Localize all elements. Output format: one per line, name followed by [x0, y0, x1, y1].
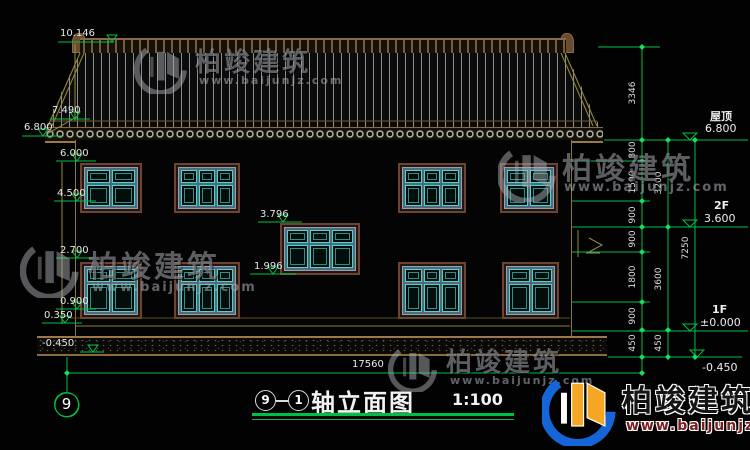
level-plinth: 0.350 — [44, 310, 73, 321]
dim-a5: 1800 — [628, 259, 638, 295]
dim-total-height: 7250 — [681, 230, 691, 266]
title-underline-thin — [252, 419, 514, 420]
level-eave: 7.490 — [52, 105, 81, 116]
level-w2-head: 6.000 — [60, 148, 89, 159]
dim-a7: 450 — [628, 325, 638, 361]
level-eave-tip: 6.800 — [24, 122, 53, 133]
dim-a4: 900 — [628, 221, 638, 257]
dim-b3: 450 — [654, 325, 664, 361]
title-axis-end: 1 — [288, 390, 309, 411]
dim-b2: 3600 — [654, 261, 664, 297]
flag-roof-level: 6.800 — [705, 122, 737, 135]
flag-1f-label: 1F — [712, 303, 727, 316]
dim-total-width: 17560 — [352, 359, 384, 370]
axis-bubble-9: 9 — [54, 392, 79, 417]
flag-1f-level: ±0.000 — [700, 316, 741, 329]
level-w2-sill: 4.500 — [57, 188, 86, 199]
level-ridge: 10.146 — [60, 28, 95, 39]
drawing-scale: 1:100 — [452, 390, 503, 409]
flag-ground-level: -0.450 — [702, 361, 737, 374]
dim-roof-rise: 3346 — [628, 75, 638, 111]
elevation-drawing: 10.146 7.490 6.800 6.000 4.500 2.700 0.9… — [0, 0, 750, 450]
title-axis-start: 9 — [255, 390, 276, 411]
level-w1-sill: 0.900 — [60, 296, 89, 307]
dim-a2: 1500 — [628, 164, 638, 200]
title-underline-thick — [252, 413, 514, 416]
flag-2f-level: 3.600 — [704, 212, 736, 225]
level-ground-left: -0.450 — [42, 338, 74, 349]
level-w1-head: 2.700 — [60, 245, 89, 256]
flag-2f-label: 2F — [714, 199, 729, 212]
level-stair-sill: 1.996 — [254, 261, 283, 272]
level-stair-head: 3.796 — [260, 209, 289, 220]
dim-b1: 3200 — [654, 165, 664, 201]
dim-a1: 800 — [628, 132, 638, 168]
